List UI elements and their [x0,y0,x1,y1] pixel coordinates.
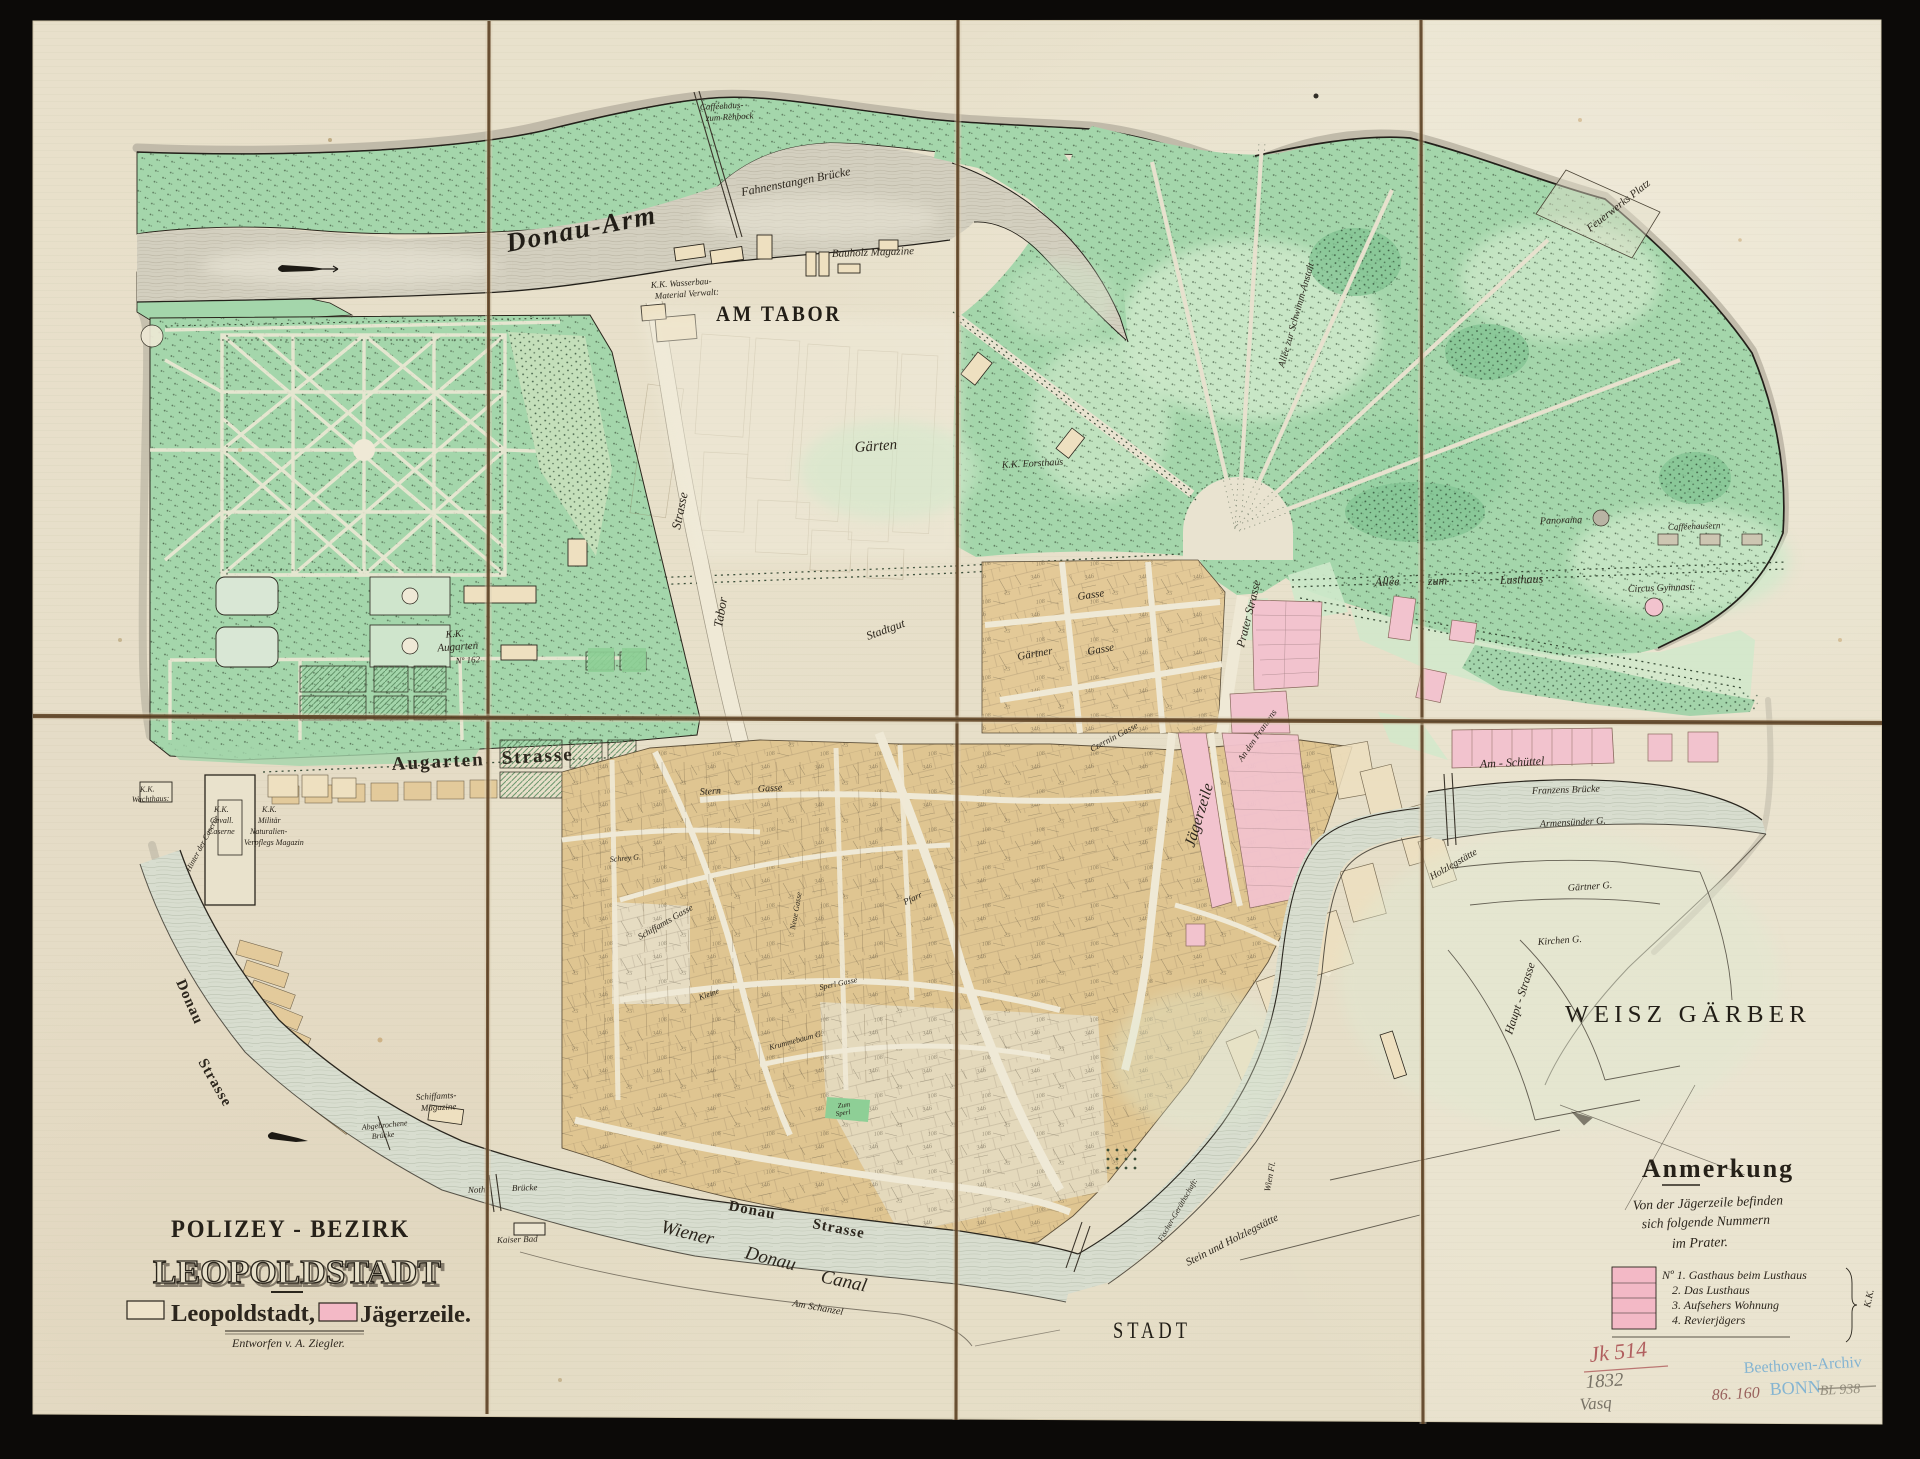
svg-text:Brücke: Brücke [512,1182,538,1193]
svg-text:AM TABOR: AM TABOR [716,301,842,326]
svg-text:LEOPOLDSTADT: LEOPOLDSTADT [153,1254,441,1291]
svg-text:Wachthaus:: Wachthaus: [132,794,170,804]
svg-text:Nº 162: Nº 162 [454,654,481,666]
svg-text:Gärten: Gärten [854,437,898,456]
svg-text:Panorama: Panorama [1539,515,1583,528]
svg-text:Strasse: Strasse [501,744,574,769]
svg-text:1832: 1832 [1585,1369,1625,1393]
svg-text:Noth: Noth [467,1184,486,1195]
svg-text:Leopoldstadt,: Leopoldstadt, [171,1301,315,1327]
svg-text:STADT: STADT [1113,1318,1191,1343]
svg-text:Stern: Stern [699,786,721,798]
svg-text:Lusthaus: Lusthaus [1499,571,1544,587]
svg-text:K.K.: K.K. [139,784,155,794]
svg-text:Vasq: Vasq [1579,1393,1613,1414]
svg-text:BL 938: BL 938 [1819,1382,1860,1399]
svg-text:WEISZ GÄRBER: WEISZ GÄRBER [1565,1002,1811,1028]
svg-text:im Prater.: im Prater. [1672,1235,1728,1252]
svg-text:Militär: Militär [257,816,282,825]
svg-text:zum: zum [1427,573,1448,588]
svg-text:Anmerkung: Anmerkung [1642,1154,1794,1183]
svg-text:BONN: BONN [1769,1376,1821,1399]
svg-text:2. Das Lusthaus: 2. Das Lusthaus [1672,1283,1750,1297]
svg-text:Verpflegs Magazin: Verpflegs Magazin [244,838,304,847]
svg-text:K.K.: K.K. [444,628,464,640]
svg-text:K.K.: K.K. [261,805,277,814]
svg-text:Gasse: Gasse [757,782,783,795]
svg-text:Entworfen v. A. Ziegler.: Entworfen v. A. Ziegler. [231,1336,345,1350]
svg-text:86. 160: 86. 160 [1711,1385,1760,1404]
svg-text:Cafféehausern: Cafféehausern [1668,520,1721,532]
svg-text:POLIZEY - BEZIRK: POLIZEY - BEZIRK [171,1216,410,1243]
svg-text:Schiffamts-: Schiffamts- [416,1090,457,1102]
svg-text:4. Revierjägers: 4. Revierjägers [1672,1313,1746,1327]
svg-text:Allée: Allée [1374,574,1401,589]
svg-text:Magazine: Magazine [420,1101,457,1113]
svg-text:3. Aufsehers Wohnung: 3. Aufsehers Wohnung [1671,1298,1779,1312]
svg-text:Naturalien-: Naturalien- [249,827,288,836]
svg-text:Jägerzeile.: Jägerzeile. [360,1302,471,1328]
svg-text:Nº 1. Gasthaus beim Lusthaus: Nº 1. Gasthaus beim Lusthaus [1661,1268,1807,1282]
svg-text:K.K.: K.K. [213,805,229,814]
